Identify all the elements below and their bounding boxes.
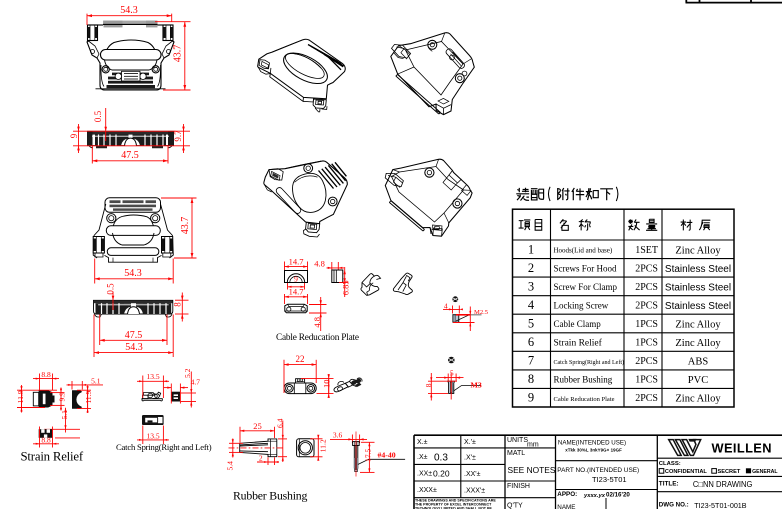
svg-text:xTkk 30%L 3nkY9G× 19GF: xTkk 30%L 3nkY9G× 19GF (565, 447, 622, 452)
svg-text:10: 10 (321, 380, 331, 389)
svg-text:1: 1 (528, 243, 534, 257)
svg-text:13.5: 13.5 (146, 431, 159, 440)
svg-text:0.3: 0.3 (434, 453, 448, 464)
svg-text:Stainless Steel: Stainless Steel (665, 264, 731, 275)
svg-text:2: 2 (528, 261, 534, 275)
svg-text:43.7: 43.7 (173, 45, 184, 63)
svg-text:NAME(INTENDED USE): NAME(INTENDED USE) (558, 440, 626, 446)
svg-text:54.3: 54.3 (125, 342, 143, 353)
svg-text:Screws For Hood: Screws For Hood (554, 264, 617, 274)
svg-text:8.8: 8.8 (41, 436, 51, 445)
svg-text:APPO:: APPO: (557, 491, 577, 498)
svg-text:X.'±: X.'± (464, 439, 476, 446)
svg-text:.XXX'±: .XXX'± (464, 488, 485, 495)
svg-text:.XXX±: .XXX± (417, 487, 437, 494)
svg-text:Hoods(Lid and base): Hoods(Lid and base) (554, 247, 613, 255)
svg-text:8: 8 (173, 302, 183, 307)
svg-text:Strain Relief: Strain Relief (554, 338, 603, 349)
svg-text:GENERAL: GENERAL (752, 469, 778, 475)
svg-text:WEILLEN: WEILLEN (712, 441, 772, 456)
svg-text:Strain Relief: Strain Relief (21, 450, 84, 464)
svg-text:5.4: 5.4 (226, 461, 235, 471)
svg-text:Screw For Clamp: Screw For Clamp (554, 282, 618, 292)
svg-text:SEE NOTES: SEE NOTES (508, 465, 556, 475)
svg-text:9: 9 (528, 391, 534, 405)
svg-text:yxxx.yx: yxxx.yx (583, 493, 606, 499)
svg-text:6.85: 6.85 (340, 280, 350, 295)
svg-text:54.3: 54.3 (120, 5, 138, 16)
svg-text:Stainless Steel: Stainless Steel (665, 301, 731, 312)
svg-text:Cable Reducation Plate: Cable Reducation Plate (554, 396, 615, 403)
svg-text:Zinc Alloy: Zinc Alloy (675, 320, 721, 331)
svg-text:8: 8 (424, 383, 433, 387)
svg-text:CLASS:: CLASS: (659, 461, 681, 467)
svg-text:0.5: 0.5 (93, 110, 103, 122)
svg-text:25: 25 (253, 421, 262, 431)
svg-text:14.7: 14.7 (289, 287, 304, 297)
svg-text:Catch Spring(Right and Left): Catch Spring(Right and Left) (554, 359, 625, 366)
svg-text:Catch Spring(Right and Left): Catch Spring(Right and Left) (116, 442, 212, 452)
svg-text:NAME: NAME (557, 504, 575, 509)
svg-text:11.2: 11.2 (319, 439, 328, 452)
svg-text:Rubber Bushing: Rubber Bushing (554, 375, 613, 385)
svg-text:Rubber Bushing: Rubber Bushing (233, 489, 308, 503)
svg-text:CONFIDENTIAL: CONFIDENTIAL (665, 469, 707, 475)
svg-text:Cable Clamp: Cable Clamp (554, 319, 602, 329)
svg-text:02/16'20: 02/16'20 (606, 492, 630, 499)
svg-text:2PCS: 2PCS (635, 301, 658, 312)
svg-text:8: 8 (528, 372, 534, 386)
svg-text:2PCS: 2PCS (635, 393, 658, 404)
svg-text:2PCS: 2PCS (635, 356, 658, 367)
svg-text:PART NO.(INTENDED USE): PART NO.(INTENDED USE) (557, 467, 639, 474)
svg-text:9: 9 (69, 133, 79, 138)
svg-text:1PCS: 1PCS (635, 319, 658, 330)
svg-text:TI23-5T01-001B: TI23-5T01-001B (694, 501, 746, 509)
svg-text:.XX'±: .XX'± (464, 471, 481, 478)
svg-text:Zinc Alloy: Zinc Alloy (675, 246, 721, 257)
svg-text:4: 4 (528, 298, 535, 312)
svg-text:4.7: 4.7 (191, 378, 201, 387)
svg-text:9: 9 (294, 275, 298, 284)
svg-text:14.7: 14.7 (289, 256, 304, 266)
svg-text:47.5: 47.5 (125, 330, 143, 341)
svg-text:1SET: 1SET (635, 245, 658, 256)
svg-text:11.9: 11.9 (84, 390, 93, 403)
svg-text:.X'±: .X'± (464, 455, 476, 462)
svg-text:47.5: 47.5 (121, 150, 139, 161)
svg-text:4.8: 4.8 (312, 317, 322, 328)
svg-text:.X±: .X± (417, 454, 428, 461)
svg-text:SECRET: SECRET (718, 469, 741, 475)
svg-text:2PCS: 2PCS (635, 264, 658, 275)
svg-text:Q'TY: Q'TY (507, 503, 523, 509)
svg-text:mm: mm (527, 442, 539, 449)
svg-text:5.2: 5.2 (183, 368, 192, 378)
svg-text:M3: M3 (471, 380, 482, 389)
svg-text:DWG NO.:: DWG NO.: (659, 502, 689, 509)
svg-text:.XX±: .XX± (417, 471, 432, 478)
svg-text:5.1: 5.1 (91, 377, 101, 386)
svg-text:9.9: 9.9 (58, 392, 67, 402)
svg-text:17.5: 17.5 (364, 448, 373, 461)
svg-text:5: 5 (450, 368, 454, 377)
svg-text:4.8: 4.8 (314, 258, 325, 268)
svg-text:43.7: 43.7 (180, 217, 191, 235)
svg-text:Cable Reducation Plate: Cable Reducation Plate (276, 333, 359, 343)
svg-text:8.8: 8.8 (41, 370, 51, 379)
svg-text:6: 6 (528, 335, 534, 349)
svg-text:PVC: PVC (688, 375, 708, 386)
svg-text:54.3: 54.3 (124, 268, 142, 279)
svg-text:13.5: 13.5 (146, 372, 159, 381)
svg-text:11.9: 11.9 (16, 390, 25, 403)
svg-text:1PCS: 1PCS (635, 375, 658, 386)
svg-text:MATL: MATL (507, 450, 525, 457)
svg-text:3.6: 3.6 (333, 431, 343, 440)
svg-text:Zinc Alloy: Zinc Alloy (675, 394, 721, 405)
svg-text:TI23-5T01: TI23-5T01 (592, 475, 627, 484)
svg-text:TITLE:: TITLE: (659, 480, 679, 487)
svg-text:2: 2 (259, 454, 263, 463)
svg-text:FINISH: FINISH (507, 483, 530, 490)
svg-text:#4-40: #4-40 (378, 451, 396, 460)
svg-text:Stainless Steel: Stainless Steel (665, 283, 731, 294)
svg-text:5: 5 (528, 317, 534, 331)
svg-text:22: 22 (296, 354, 305, 364)
svg-text:5.1: 5.1 (60, 410, 69, 420)
svg-text:M2.5: M2.5 (474, 309, 489, 316)
svg-text:Locking Screw: Locking Screw (554, 301, 609, 311)
svg-text:Zinc Alloy: Zinc Alloy (675, 338, 721, 349)
svg-text:C□NN DRAWING: C□NN DRAWING (693, 480, 753, 489)
svg-text:3: 3 (528, 280, 534, 294)
svg-text:UNITS: UNITS (507, 437, 528, 444)
svg-text:1PCS: 1PCS (635, 338, 658, 349)
svg-text:X.±: X.± (417, 439, 428, 446)
svg-text:2PCS: 2PCS (635, 282, 658, 293)
svg-text:7: 7 (528, 354, 534, 368)
svg-text:0.20: 0.20 (433, 469, 450, 479)
svg-text:0.5: 0.5 (106, 283, 116, 295)
svg-text:ABS: ABS (688, 357, 709, 368)
svg-text:9.7: 9.7 (173, 130, 183, 142)
